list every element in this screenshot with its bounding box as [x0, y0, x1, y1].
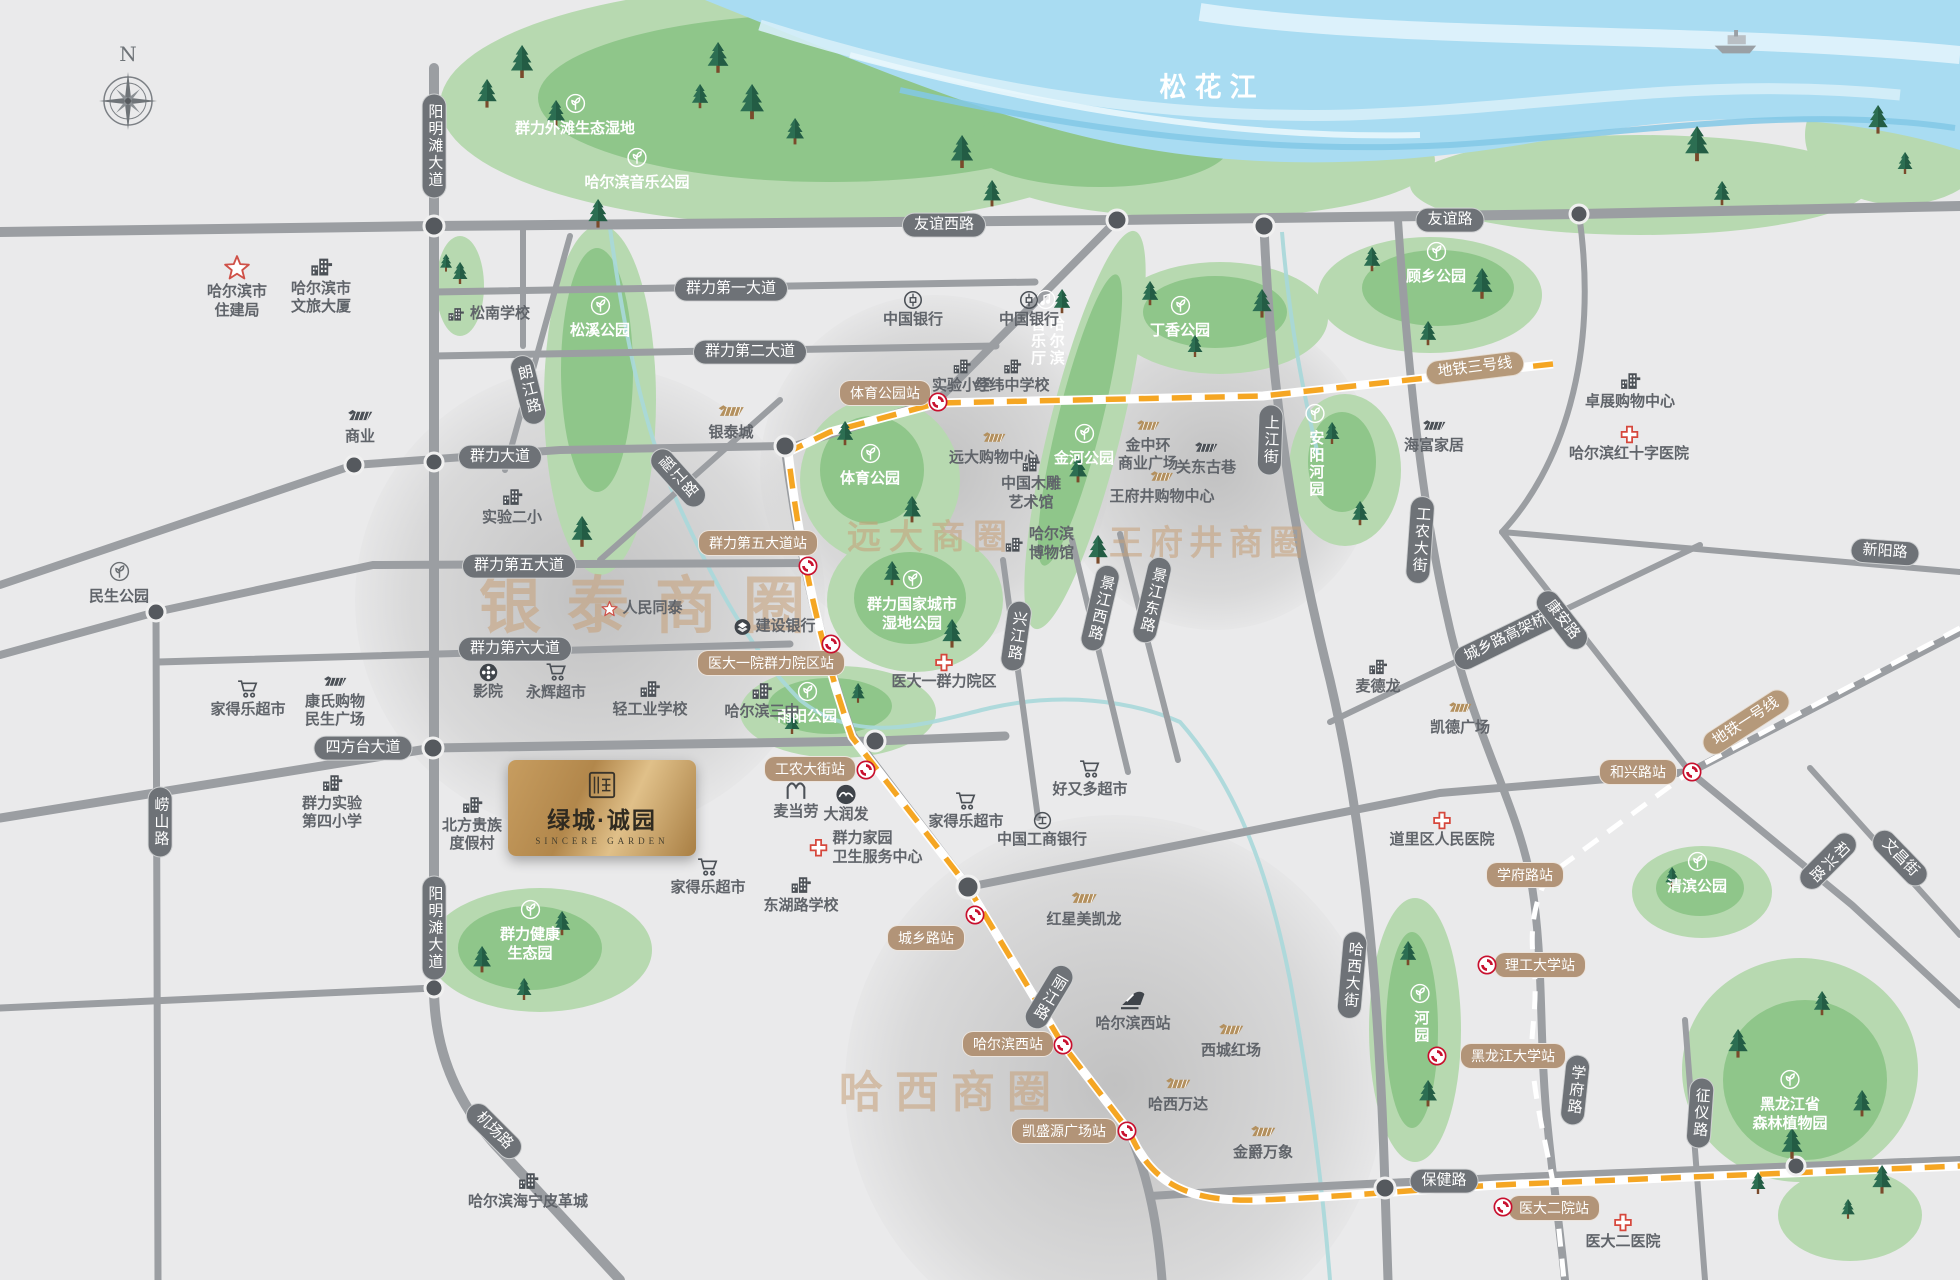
poi-building: 麦德龙	[1355, 655, 1400, 697]
mall-dark-icon	[322, 668, 347, 693]
poi-name: 哈尔滨博物馆	[1029, 525, 1074, 563]
poi-name: 卓展购物中心	[1585, 393, 1675, 412]
poi-name: 银泰城	[708, 424, 753, 443]
park-label: 体育公园	[840, 442, 900, 489]
road-label: 群力第二大道	[693, 340, 807, 365]
mall-gold-icon	[981, 424, 1006, 449]
poi-name: 家得乐超市	[210, 701, 285, 720]
park-icon	[1409, 982, 1432, 1010]
mall-dark-icon	[1193, 434, 1218, 459]
metro-station-label: 工农大街站	[764, 756, 856, 782]
metro-station-label: 和兴路站	[1599, 759, 1677, 785]
park-name: 松溪公园	[570, 322, 630, 341]
park-label: 松溪公园	[570, 294, 630, 341]
poi-name: 永辉超市	[526, 684, 586, 703]
poi-mall-gold: 哈西万达	[1148, 1069, 1208, 1115]
metro-line-label: 地铁一号线	[1698, 685, 1795, 760]
park-icon	[1304, 402, 1327, 430]
metro-icon	[965, 905, 985, 925]
poi-name: 红星美凯龙	[1046, 911, 1121, 930]
road-label: 上江街	[1256, 404, 1283, 476]
cart-icon	[695, 854, 720, 879]
park-icon	[563, 92, 586, 120]
metro-station-label: 凯盛源广场站	[1011, 1118, 1117, 1144]
road-label: 阳明滩大道	[422, 876, 447, 981]
metro-station-label: 理工大学站	[1494, 952, 1586, 978]
park-name: 丁香公园	[1150, 322, 1210, 341]
poi-cross-red: 群力家园卫生服务中心	[808, 829, 923, 867]
poi-bank-icbc: 中国工商银行	[997, 810, 1087, 850]
building-icon	[951, 355, 973, 377]
park-icon	[588, 294, 611, 322]
mall-dark-icon	[346, 401, 373, 428]
poi-name: 哈尔滨市文旅大厦	[291, 280, 351, 318]
park-icon	[518, 898, 541, 926]
poi-cart: 家得乐超市	[928, 788, 1003, 832]
mall-gold-icon	[1217, 1015, 1244, 1042]
poi-star-red: 人民同泰	[600, 600, 683, 619]
road-label: 景江东路	[1130, 554, 1174, 645]
district-watermark: 哈西商圈	[839, 1056, 1063, 1120]
building-icon	[1003, 533, 1025, 555]
poi-cross-red: 哈尔滨红十字医院	[1569, 424, 1689, 464]
park-icon	[1168, 294, 1191, 322]
poi-cross-red: 医大一群力院区	[891, 652, 996, 692]
park-label: 群力健康生态园	[500, 898, 560, 964]
park-name: 群力外滩生态湿地	[515, 120, 635, 139]
poi-building: 轻工业学校	[612, 676, 687, 720]
poi-rt-mart: 大润发	[823, 783, 868, 825]
poi-bank-boc: 中国银行	[883, 289, 943, 330]
cart-icon	[1077, 756, 1102, 781]
project-title: 绿城·诚园	[547, 801, 657, 835]
metro-station-label: 体育公园站	[839, 380, 931, 406]
metro-icon	[928, 392, 948, 412]
building-icon	[446, 304, 466, 324]
cinema-icon	[477, 662, 498, 683]
road-label: 群力大道	[458, 445, 542, 470]
mall-gold-icon	[717, 396, 745, 424]
metro-icon	[1477, 955, 1497, 975]
star-red-icon	[600, 600, 619, 619]
poi-name: 家得乐超市	[670, 879, 745, 898]
park-name: 体育公园	[840, 470, 900, 489]
poi-mcdonalds: 麦当劳	[773, 778, 818, 822]
park-name: 顾乡公园	[1406, 268, 1466, 287]
road-label: 融江路	[645, 443, 711, 512]
poi-name: 家得乐超市	[928, 813, 1003, 832]
poi-name: 影院	[473, 683, 503, 702]
building-icon	[459, 792, 484, 817]
park-icon	[1072, 422, 1095, 450]
project-subtitle: SINCERE GARDEN	[535, 836, 668, 846]
road-label: 哈西大街	[1336, 930, 1368, 1020]
building-icon	[788, 872, 813, 897]
road-label: 工农大街	[1405, 495, 1436, 585]
poi-name: 轻工业学校	[612, 701, 687, 720]
building-icon	[499, 484, 524, 509]
metro-station-label: 哈尔滨西站	[962, 1031, 1054, 1057]
metro-icon	[1053, 1035, 1073, 1055]
bank-ccb-icon	[733, 618, 752, 637]
road-label: 群力第五大道	[462, 554, 576, 579]
mall-gold-icon	[1249, 1117, 1276, 1144]
poi-mall-gold: 银泰城	[708, 396, 753, 443]
park-label: 黑龙江省森林植物园	[1752, 1068, 1827, 1134]
poi-name: 建设银行	[756, 618, 816, 637]
poi-train: 哈尔滨西站	[1095, 985, 1170, 1034]
metro-icon	[1682, 762, 1702, 782]
poi-name: 商业	[345, 428, 375, 447]
road-label: 保健路	[1409, 1169, 1478, 1194]
bank-icbc-icon	[1031, 810, 1052, 831]
metro-station-label: 城乡路站	[887, 925, 965, 951]
park-label: 民生公园	[89, 560, 149, 607]
cart-icon	[235, 676, 260, 701]
poi-building: 中国木雕艺术馆	[1001, 453, 1061, 513]
poi-name: 哈尔滨三中	[724, 703, 799, 722]
poi-name: 医大二医院	[1585, 1233, 1660, 1252]
poi-cart: 家得乐超市	[670, 854, 745, 898]
project-logo-icon	[587, 770, 617, 800]
building-icon	[307, 253, 334, 280]
poi-name: 麦当劳	[773, 803, 818, 822]
poi-name: 松南学校	[470, 305, 530, 324]
park-label: 金河公园	[1054, 422, 1114, 469]
cross-red-icon	[933, 652, 954, 673]
road-label: 友谊路	[1415, 208, 1484, 233]
building-icon	[1617, 368, 1642, 393]
park-icon	[1424, 240, 1447, 268]
poi-mall-gold: 凯德广场	[1430, 694, 1490, 738]
poi-cart: 永辉超市	[526, 659, 586, 703]
poi-name: 群力家园卫生服务中心	[833, 829, 923, 867]
road-label: 朗江路	[507, 353, 548, 428]
park-icon	[858, 442, 881, 470]
poi-name: 大润发	[823, 806, 868, 825]
poi-mall-gold: 金爵万象	[1233, 1117, 1293, 1163]
poi-mall-dark: 康氏购物民生广场	[305, 668, 365, 731]
poi-name: 中国银行	[999, 311, 1059, 330]
compass-north-label: N	[119, 42, 137, 66]
poi-cart: 家得乐超市	[210, 676, 285, 720]
metro-line-label: 地铁三号线	[1424, 350, 1525, 387]
metro-station-label: 学府路站	[1486, 862, 1564, 888]
poi-mall-gold: 红星美凯龙	[1046, 883, 1121, 930]
district-watermark: 王府井商圈	[1109, 516, 1309, 565]
park-name: 河园	[1411, 1010, 1430, 1044]
metro-station-label: 黑龙江大学站	[1460, 1043, 1566, 1069]
building-icon	[1366, 655, 1389, 678]
star-red-icon	[222, 253, 252, 283]
park-icon	[1778, 1068, 1801, 1096]
poi-name: 麦德龙	[1355, 678, 1400, 697]
poi-building: 经纬中学校	[974, 355, 1049, 396]
poi-name: 群力实验第四小学	[302, 795, 362, 833]
rt-mart-icon	[834, 783, 857, 806]
road-label: 征仪路	[1685, 1077, 1715, 1150]
poi-name: 王府井购物中心	[1109, 488, 1214, 507]
mall-gold-icon	[1164, 1069, 1191, 1096]
map-canvas: 银泰商圈远大商圈王府井商圈哈西商圈 友谊西路友谊路群力第一大道群力第二大道群力大…	[0, 0, 1960, 1280]
poi-name: 医大一群力院区	[891, 673, 996, 692]
cross-red-icon	[1612, 1212, 1633, 1233]
metro-icon	[821, 634, 841, 654]
park-icon	[900, 568, 923, 596]
poi-name: 哈尔滨红十字医院	[1569, 445, 1689, 464]
poi-mall-gold: 西城红场	[1201, 1015, 1261, 1061]
poi-name: 哈西万达	[1148, 1096, 1208, 1115]
poi-building: 东湖路学校	[763, 872, 838, 916]
metro-icon	[1427, 1046, 1447, 1066]
park-name: 哈尔滨音乐公园	[584, 174, 689, 193]
road-label: 友谊西路	[902, 213, 986, 238]
mall-gold-icon	[1070, 883, 1098, 911]
poi-building: 松南学校	[446, 304, 530, 324]
poi-name: 哈尔滨海宁皮革城	[468, 1193, 588, 1212]
poi-star-red: 哈尔滨市住建局	[207, 253, 267, 321]
poi-bank-boc: 中国银行	[999, 289, 1059, 330]
building-icon	[749, 678, 774, 703]
building-icon	[1020, 453, 1042, 475]
park-label: 河园	[1409, 982, 1432, 1044]
poi-mall-gold: 王府井购物中心	[1109, 463, 1214, 507]
road-label: 景江西路	[1078, 562, 1122, 653]
building-icon	[637, 676, 662, 701]
project-plaque: 绿城·诚园 SINCERE GARDEN	[508, 760, 696, 856]
metro-icon	[1117, 1121, 1137, 1141]
building-icon	[319, 770, 344, 795]
park-label: 清滨公园	[1667, 850, 1727, 897]
road-label: 新阳路	[1850, 537, 1921, 567]
poi-name: 海富家居	[1404, 437, 1464, 456]
road-label: 丽江路	[1020, 960, 1078, 1034]
park-name: 民生公园	[89, 588, 149, 607]
poi-name: 实验二小	[482, 509, 542, 528]
poi-name: 哈尔滨市住建局	[207, 283, 267, 321]
poi-name: 经纬中学校	[974, 377, 1049, 396]
park-label: 群力外滩生态湿地	[515, 92, 635, 139]
compass-rose-icon	[93, 66, 163, 136]
compass: N	[90, 42, 166, 144]
poi-name: 康氏购物民生广场	[305, 693, 365, 731]
road-label: 四方台大道	[313, 736, 412, 761]
cart-icon	[543, 659, 568, 684]
poi-name: 北方贵族度假村	[442, 817, 502, 855]
poi-building: 哈尔滨市文旅大厦	[291, 253, 351, 318]
poi-name: 中国工商银行	[997, 831, 1087, 850]
park-label: 安阳河园	[1304, 402, 1327, 498]
poi-name: 东湖路学校	[763, 897, 838, 916]
poi-name: 好又多超市	[1052, 781, 1127, 800]
road-label: 和兴路	[1794, 827, 1862, 895]
park-name: 黑龙江省森林植物园	[1752, 1096, 1827, 1134]
cross-red-icon	[1618, 424, 1639, 445]
park-label: 群力国家城市湿地公园	[867, 568, 957, 634]
poi-mall-dark: 海富家居	[1404, 412, 1464, 456]
road-label: 文昌街	[1867, 825, 1933, 892]
poi-name: 西城红场	[1201, 1042, 1261, 1061]
poi-building: 哈尔滨博物馆	[1003, 525, 1074, 563]
poi-name: 凯德广场	[1430, 719, 1490, 738]
road-label: 阳明滩大道	[422, 94, 447, 199]
park-icon	[625, 146, 648, 174]
road-label: 兴江路	[999, 599, 1033, 673]
poi-name: 中国银行	[883, 311, 943, 330]
road-label: 机场路	[461, 1098, 527, 1164]
river-name: 松花江	[1160, 66, 1265, 105]
metro-icon	[1493, 1197, 1513, 1217]
park-name: 金河公园	[1054, 450, 1114, 469]
poi-building: 北方贵族度假村	[442, 792, 502, 855]
bank-boc-icon	[1018, 289, 1040, 311]
district-watermark: 远大商圈	[847, 510, 1015, 559]
mall-dark-icon	[1421, 412, 1446, 437]
bank-boc-icon	[902, 289, 924, 311]
mall-gold-icon	[1447, 694, 1472, 719]
poi-name: 人民同泰	[623, 600, 683, 619]
poi-name: 哈尔滨西站	[1095, 1015, 1170, 1034]
mall-gold-icon	[1149, 463, 1174, 488]
ship-icon	[1712, 30, 1764, 61]
park-name: 安阳河园	[1306, 430, 1325, 498]
building-icon	[1001, 355, 1023, 377]
metro-icon	[856, 760, 876, 780]
poi-building: 哈尔滨三中	[724, 678, 799, 722]
metro-station-label: 群力第五大道站	[698, 530, 818, 556]
mall-gold-icon	[1135, 412, 1160, 437]
cross-red-icon	[808, 838, 829, 859]
poi-bank-ccb: 建设银行	[733, 618, 816, 637]
poi-building: 群力实验第四小学	[302, 770, 362, 833]
road-label: 群力第一大道	[674, 277, 788, 302]
metro-icon	[798, 556, 818, 576]
poi-mall-dark: 商业	[345, 401, 375, 447]
poi-name: 金爵万象	[1233, 1144, 1293, 1163]
poi-cinema: 影院	[473, 662, 503, 702]
poi-building: 实验二小	[482, 484, 542, 528]
park-label: 丁香公园	[1150, 294, 1210, 341]
road-label: 群力第六大道	[458, 637, 572, 662]
poi-cart: 好又多超市	[1052, 756, 1127, 800]
park-label: 顾乡公园	[1406, 240, 1466, 287]
train-icon	[1118, 985, 1148, 1015]
poi-building: 哈尔滨海宁皮革城	[468, 1168, 588, 1212]
building-icon	[515, 1168, 540, 1193]
metro-station-label: 医大二院站	[1508, 1195, 1600, 1221]
poi-building: 卓展购物中心	[1585, 368, 1675, 412]
road-label: 崂山路	[148, 787, 173, 858]
cart-icon	[953, 788, 978, 813]
cross-red-icon	[1431, 810, 1452, 831]
poi-cross-red: 道里区人民医院	[1389, 810, 1494, 850]
park-icon	[1685, 850, 1708, 878]
poi-name: 中国木雕艺术馆	[1001, 475, 1061, 513]
park-dark-icon	[107, 560, 130, 588]
park-name: 群力健康生态园	[500, 926, 560, 964]
park-label: 哈尔滨音乐公园	[584, 146, 689, 193]
park-name: 群力国家城市湿地公园	[867, 596, 957, 634]
poi-name: 道里区人民医院	[1389, 831, 1494, 850]
park-name: 清滨公园	[1667, 878, 1727, 897]
